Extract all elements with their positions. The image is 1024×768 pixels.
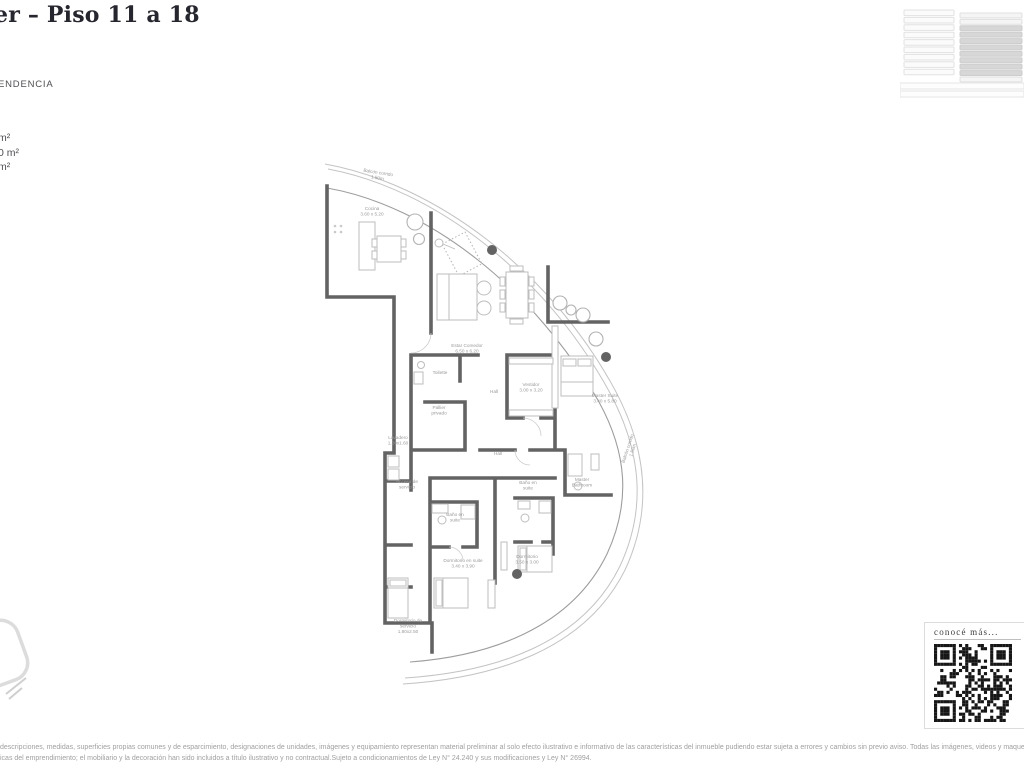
room-labels: Balcón corrido1.50mCocina3.60 x 5.20Esta… [360, 168, 639, 634]
room-label: Lavadero1.20x1.60 [388, 435, 409, 445]
tower-left [904, 10, 954, 75]
room-label: Estar Comedor6.50 x 6.20 [451, 343, 483, 353]
room-label: Baño ensuite [519, 480, 537, 490]
room-label: Master Suite3.40 x 5.80 [592, 393, 619, 403]
room-label: Pallierprivado [431, 405, 447, 415]
area-measurements: m² 0 m² m² [0, 131, 19, 175]
room-label: Acceso deservicio [396, 479, 418, 489]
developer-logo-mark [0, 612, 72, 724]
brochure-page: er – Piso 11 a 18 ENDENCIA m² 0 m² m² [0, 0, 1024, 768]
area-value: m² [0, 160, 19, 175]
room-label: Vestidor3.00 x 3.20 [519, 382, 543, 392]
room-label: Balcón corrido1.50m [362, 168, 394, 183]
page-title: er – Piso 11 a 18 [0, 2, 200, 28]
floor-plan: Balcón corrido1.50mCocina3.60 x 5.20Esta… [315, 150, 665, 690]
area-value: 0 m² [0, 146, 19, 161]
room-label: Balcón corrido1.50m [621, 433, 640, 465]
building-floors-diagram [900, 0, 1024, 104]
room-label: Hall [490, 389, 498, 394]
tower-right-highlighted-floors [960, 13, 1022, 82]
room-label: Toilette [433, 370, 448, 375]
legal-disclaimer: descripciones, medidas, superficies prop… [0, 743, 1024, 764]
qr-caption: conocé más... [934, 627, 1021, 640]
room-label: Cocina3.60 x 5.20 [360, 206, 384, 216]
stove-burners [334, 225, 343, 234]
qr-card: conocé más... [924, 622, 1024, 729]
legal-line: icas del emprendimiento; el mobiliario y… [0, 754, 1024, 765]
building-base [900, 83, 1024, 97]
room-label: Dormitorio deservicio1.80x2.50 [394, 618, 423, 634]
qr-code [934, 644, 1012, 722]
room-label: Dormitorio3.50 x 3.00 [515, 554, 539, 564]
room-label: Hall [494, 451, 502, 456]
room-label: MasterBathroom [572, 477, 592, 487]
room-label: Dormitorio en suite3.40 x 3.90 [443, 558, 483, 568]
page-subtitle: ENDENCIA [0, 79, 54, 90]
area-value: m² [0, 131, 19, 146]
legal-line: descripciones, medidas, superficies prop… [0, 743, 1024, 754]
